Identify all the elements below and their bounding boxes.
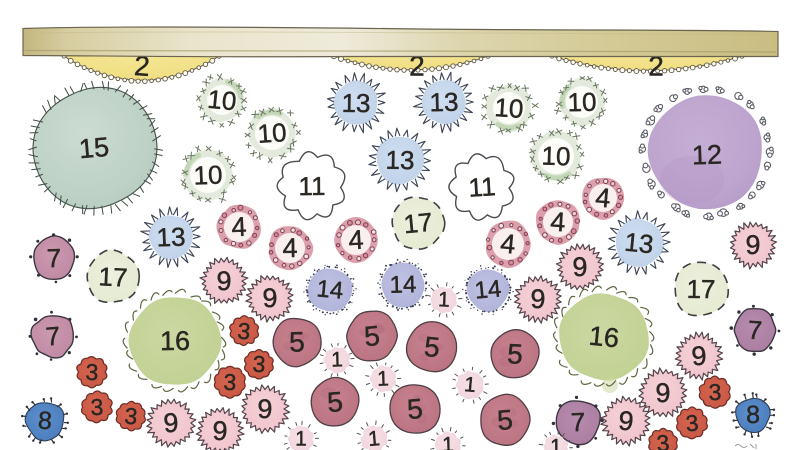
svg-text:17: 17 [98,261,128,292]
svg-text:9: 9 [216,266,231,296]
svg-text:9: 9 [262,283,278,313]
svg-text:10: 10 [494,92,525,124]
svg-text:13: 13 [341,88,370,118]
svg-text:13: 13 [385,145,414,175]
svg-text:3: 3 [223,369,237,396]
svg-text:4: 4 [231,212,247,243]
svg-text:1: 1 [367,427,381,450]
svg-text:13: 13 [156,221,186,252]
svg-text:5: 5 [496,404,514,436]
svg-text:9: 9 [745,230,760,260]
svg-text:7: 7 [46,243,61,273]
svg-text:7: 7 [45,320,62,351]
svg-text:9: 9 [572,252,588,282]
svg-text:9: 9 [690,341,707,372]
svg-text:3: 3 [656,430,671,450]
svg-text:10: 10 [193,159,223,190]
svg-text:4: 4 [348,225,365,256]
svg-text:1: 1 [550,435,562,450]
svg-text:5: 5 [506,338,523,370]
svg-text:1: 1 [377,367,389,390]
svg-text:5: 5 [406,393,424,425]
svg-text:3: 3 [684,409,699,436]
svg-text:9: 9 [617,405,635,436]
svg-text:11: 11 [468,171,497,203]
svg-text:4: 4 [499,228,517,259]
svg-text:17: 17 [402,207,434,240]
svg-text:10: 10 [206,84,238,117]
svg-text:10: 10 [567,87,597,118]
svg-text:17: 17 [686,274,715,304]
svg-text:5: 5 [363,320,381,352]
svg-text:4: 4 [550,207,567,238]
svg-text:3: 3 [90,394,103,420]
svg-text:3: 3 [85,359,99,386]
svg-text:5: 5 [423,331,441,363]
svg-text:1: 1 [331,348,343,371]
svg-text:4: 4 [594,182,612,213]
svg-text:9: 9 [163,408,180,439]
svg-text:9: 9 [655,378,671,408]
svg-text:9: 9 [530,284,546,314]
svg-text:15: 15 [78,132,110,164]
svg-text:3: 3 [123,402,138,429]
svg-text:14: 14 [315,275,344,304]
svg-text:8: 8 [746,401,760,429]
svg-text:9: 9 [257,394,272,424]
svg-text:11: 11 [298,171,325,201]
svg-text:5: 5 [289,326,306,358]
svg-text:10: 10 [257,117,288,149]
svg-text:10: 10 [541,141,571,172]
svg-text:16: 16 [160,326,190,356]
svg-text:3: 3 [236,317,251,344]
svg-text:3: 3 [708,379,721,405]
svg-text:1: 1 [295,427,307,450]
svg-text:9: 9 [212,416,228,446]
svg-text:1: 1 [463,373,477,397]
svg-text:7: 7 [570,407,586,438]
svg-text:8: 8 [37,407,53,436]
svg-text:14: 14 [389,271,416,299]
svg-text:3: 3 [252,351,267,378]
svg-text:1: 1 [438,288,451,311]
svg-text:13: 13 [623,227,655,260]
svg-text:7: 7 [747,315,763,346]
svg-text:5: 5 [326,386,344,418]
svg-text:12: 12 [691,140,722,171]
svg-text:4: 4 [282,233,297,263]
svg-text:13: 13 [429,87,459,118]
svg-text:14: 14 [473,275,502,304]
svg-text:16: 16 [588,321,621,354]
svg-text:1: 1 [442,433,454,450]
